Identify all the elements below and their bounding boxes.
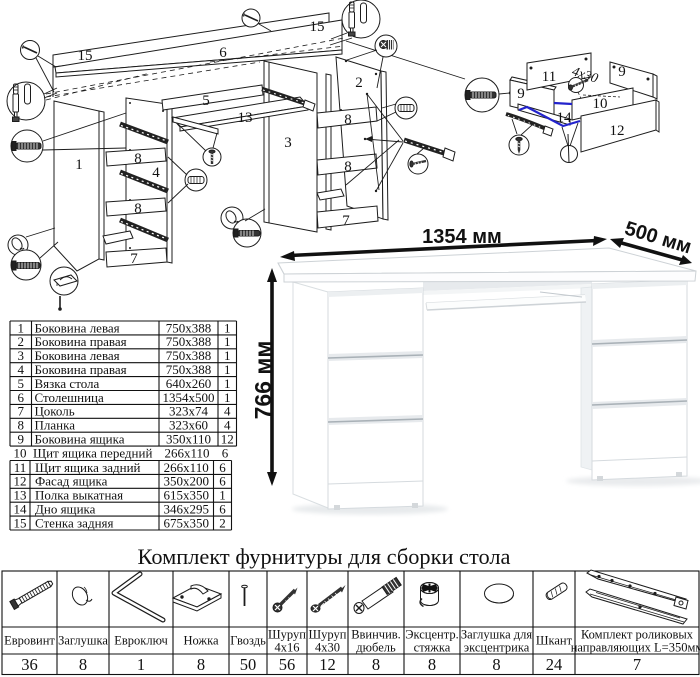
svg-text:11: 11 (14, 460, 27, 475)
svg-text:5: 5 (202, 93, 210, 109)
svg-text:Боковина правая: Боковина правая (35, 362, 127, 377)
svg-text:1: 1 (224, 376, 231, 391)
svg-text:Шуруп: Шуруп (309, 628, 347, 642)
svg-text:8: 8 (197, 655, 205, 674)
svg-text:Гвоздь: Гвоздь (230, 634, 266, 648)
svg-text:323x60: 323x60 (169, 418, 208, 433)
svg-text:эксцентрика: эксцентрика (464, 641, 530, 655)
svg-text:9: 9 (18, 432, 25, 447)
svg-text:стяжка: стяжка (414, 641, 451, 655)
svg-text:750x388: 750x388 (166, 320, 212, 335)
svg-text:675x350: 675x350 (163, 515, 209, 530)
svg-text:766 мм: 766 мм (250, 341, 276, 420)
svg-text:323x74: 323x74 (169, 404, 209, 419)
svg-text:1354 мм: 1354 мм (422, 226, 502, 248)
svg-text:8: 8 (79, 655, 87, 674)
svg-text:346x295: 346x295 (163, 502, 209, 517)
svg-text:8: 8 (134, 201, 142, 217)
svg-text:4: 4 (18, 362, 25, 377)
svg-text:2: 2 (18, 334, 25, 349)
svg-text:13: 13 (238, 110, 253, 126)
svg-text:Шуруп: Шуруп (268, 628, 306, 642)
svg-text:8: 8 (134, 151, 142, 167)
svg-text:2: 2 (355, 75, 363, 91)
svg-text:350x110: 350x110 (166, 432, 211, 447)
svg-text:Планка: Планка (35, 418, 76, 433)
svg-text:3: 3 (18, 348, 25, 363)
svg-text:750x388: 750x388 (166, 348, 212, 363)
svg-text:Евроключ: Евроключ (114, 634, 168, 648)
svg-text:615x350: 615x350 (163, 488, 209, 503)
svg-text:1: 1 (224, 320, 231, 335)
svg-text:1: 1 (219, 488, 226, 503)
svg-text:14: 14 (557, 110, 573, 126)
svg-text:1: 1 (18, 320, 25, 335)
svg-text:Фасад ящика: Фасад ящика (35, 474, 108, 489)
svg-text:Ввинчив.: Ввинчив. (351, 628, 401, 642)
svg-text:Ножка: Ножка (183, 634, 218, 648)
svg-text:дюбель: дюбель (356, 641, 396, 655)
svg-text:1: 1 (224, 334, 231, 349)
svg-text:Комплект фурнитуры для сборки: Комплект фурнитуры для сборки стола (138, 544, 511, 569)
svg-text:11: 11 (542, 69, 556, 85)
svg-text:350x200: 350x200 (163, 474, 209, 489)
svg-text:3: 3 (284, 135, 292, 151)
svg-text:Комплект роликовых: Комплект роликовых (581, 628, 694, 642)
svg-text:8: 8 (492, 655, 500, 674)
svg-text:8: 8 (428, 655, 436, 674)
svg-text:Евровинт: Евровинт (4, 634, 55, 648)
svg-text:6: 6 (222, 446, 229, 461)
svg-text:Боковина левая: Боковина левая (35, 320, 120, 335)
svg-text:Шкант: Шкант (536, 634, 573, 648)
svg-text:1: 1 (224, 390, 231, 405)
svg-text:1354x500: 1354x500 (163, 390, 215, 405)
svg-text:4: 4 (152, 165, 160, 181)
svg-text:Заглушка для: Заглушка для (461, 628, 533, 642)
svg-text:7: 7 (633, 655, 641, 674)
svg-text:Боковина правая: Боковина правая (35, 334, 127, 349)
svg-text:Эксцентр.: Эксцентр. (405, 628, 458, 642)
svg-text:Вязка стола: Вязка стола (35, 376, 100, 391)
svg-text:8: 8 (344, 159, 352, 175)
svg-text:12: 12 (610, 123, 625, 139)
svg-text:266x110: 266x110 (164, 460, 209, 475)
svg-text:6: 6 (219, 502, 226, 517)
svg-text:Дно ящика: Дно ящика (35, 502, 96, 517)
svg-text:266x110: 266x110 (164, 446, 209, 461)
svg-text:1: 1 (224, 348, 231, 363)
svg-text:6: 6 (219, 45, 227, 61)
svg-text:15: 15 (14, 515, 27, 530)
svg-text:14: 14 (14, 502, 28, 517)
svg-text:Заглушка: Заглушка (58, 634, 108, 648)
svg-text:750x388: 750x388 (166, 334, 212, 349)
svg-text:7: 7 (130, 251, 138, 267)
svg-text:1: 1 (137, 655, 145, 674)
svg-text:5: 5 (18, 376, 25, 391)
svg-text:8: 8 (344, 112, 352, 128)
svg-text:6: 6 (219, 474, 226, 489)
svg-text:Столешница: Столешница (35, 390, 104, 405)
svg-text:24: 24 (546, 655, 563, 674)
svg-text:15: 15 (78, 48, 93, 64)
svg-text:Полка выкатная: Полка выкатная (35, 488, 123, 503)
svg-text:7: 7 (342, 213, 350, 229)
svg-text:750x388: 750x388 (166, 362, 212, 377)
svg-text:12: 12 (319, 655, 336, 674)
svg-text:10: 10 (14, 446, 27, 461)
svg-text:8: 8 (18, 418, 25, 433)
svg-text:Боковина ящика: Боковина ящика (35, 432, 125, 447)
svg-text:12: 12 (221, 432, 234, 447)
svg-text:50: 50 (240, 655, 257, 674)
svg-text:9: 9 (517, 86, 525, 102)
svg-text:9: 9 (618, 64, 626, 80)
svg-text:4: 4 (224, 404, 231, 419)
svg-text:13: 13 (14, 488, 27, 503)
svg-text:направляющих L=350мм: направляющих L=350мм (571, 641, 700, 655)
svg-text:Боковина левая: Боковина левая (35, 348, 120, 363)
svg-text:4: 4 (224, 418, 231, 433)
svg-text:6: 6 (18, 390, 25, 405)
svg-text:640x260: 640x260 (166, 376, 212, 391)
svg-text:1: 1 (75, 157, 83, 173)
svg-text:56: 56 (279, 655, 296, 674)
svg-text:Щит ящика задний: Щит ящика задний (35, 460, 141, 475)
svg-text:7: 7 (18, 404, 25, 419)
svg-text:6: 6 (219, 460, 226, 475)
svg-text:Щит ящика передний: Щит ящика передний (33, 446, 152, 461)
svg-text:36: 36 (21, 655, 38, 674)
svg-text:8: 8 (372, 655, 380, 674)
svg-text:1: 1 (224, 362, 231, 377)
svg-text:4x16: 4x16 (275, 641, 300, 655)
svg-text:4x30: 4x30 (315, 641, 340, 655)
svg-text:12: 12 (14, 474, 27, 489)
svg-text:15: 15 (310, 19, 325, 35)
svg-text:Стенка задняя: Стенка задняя (35, 515, 114, 530)
svg-text:2: 2 (219, 515, 226, 530)
svg-text:Цоколь: Цоколь (35, 404, 75, 419)
svg-text:10: 10 (593, 96, 608, 112)
